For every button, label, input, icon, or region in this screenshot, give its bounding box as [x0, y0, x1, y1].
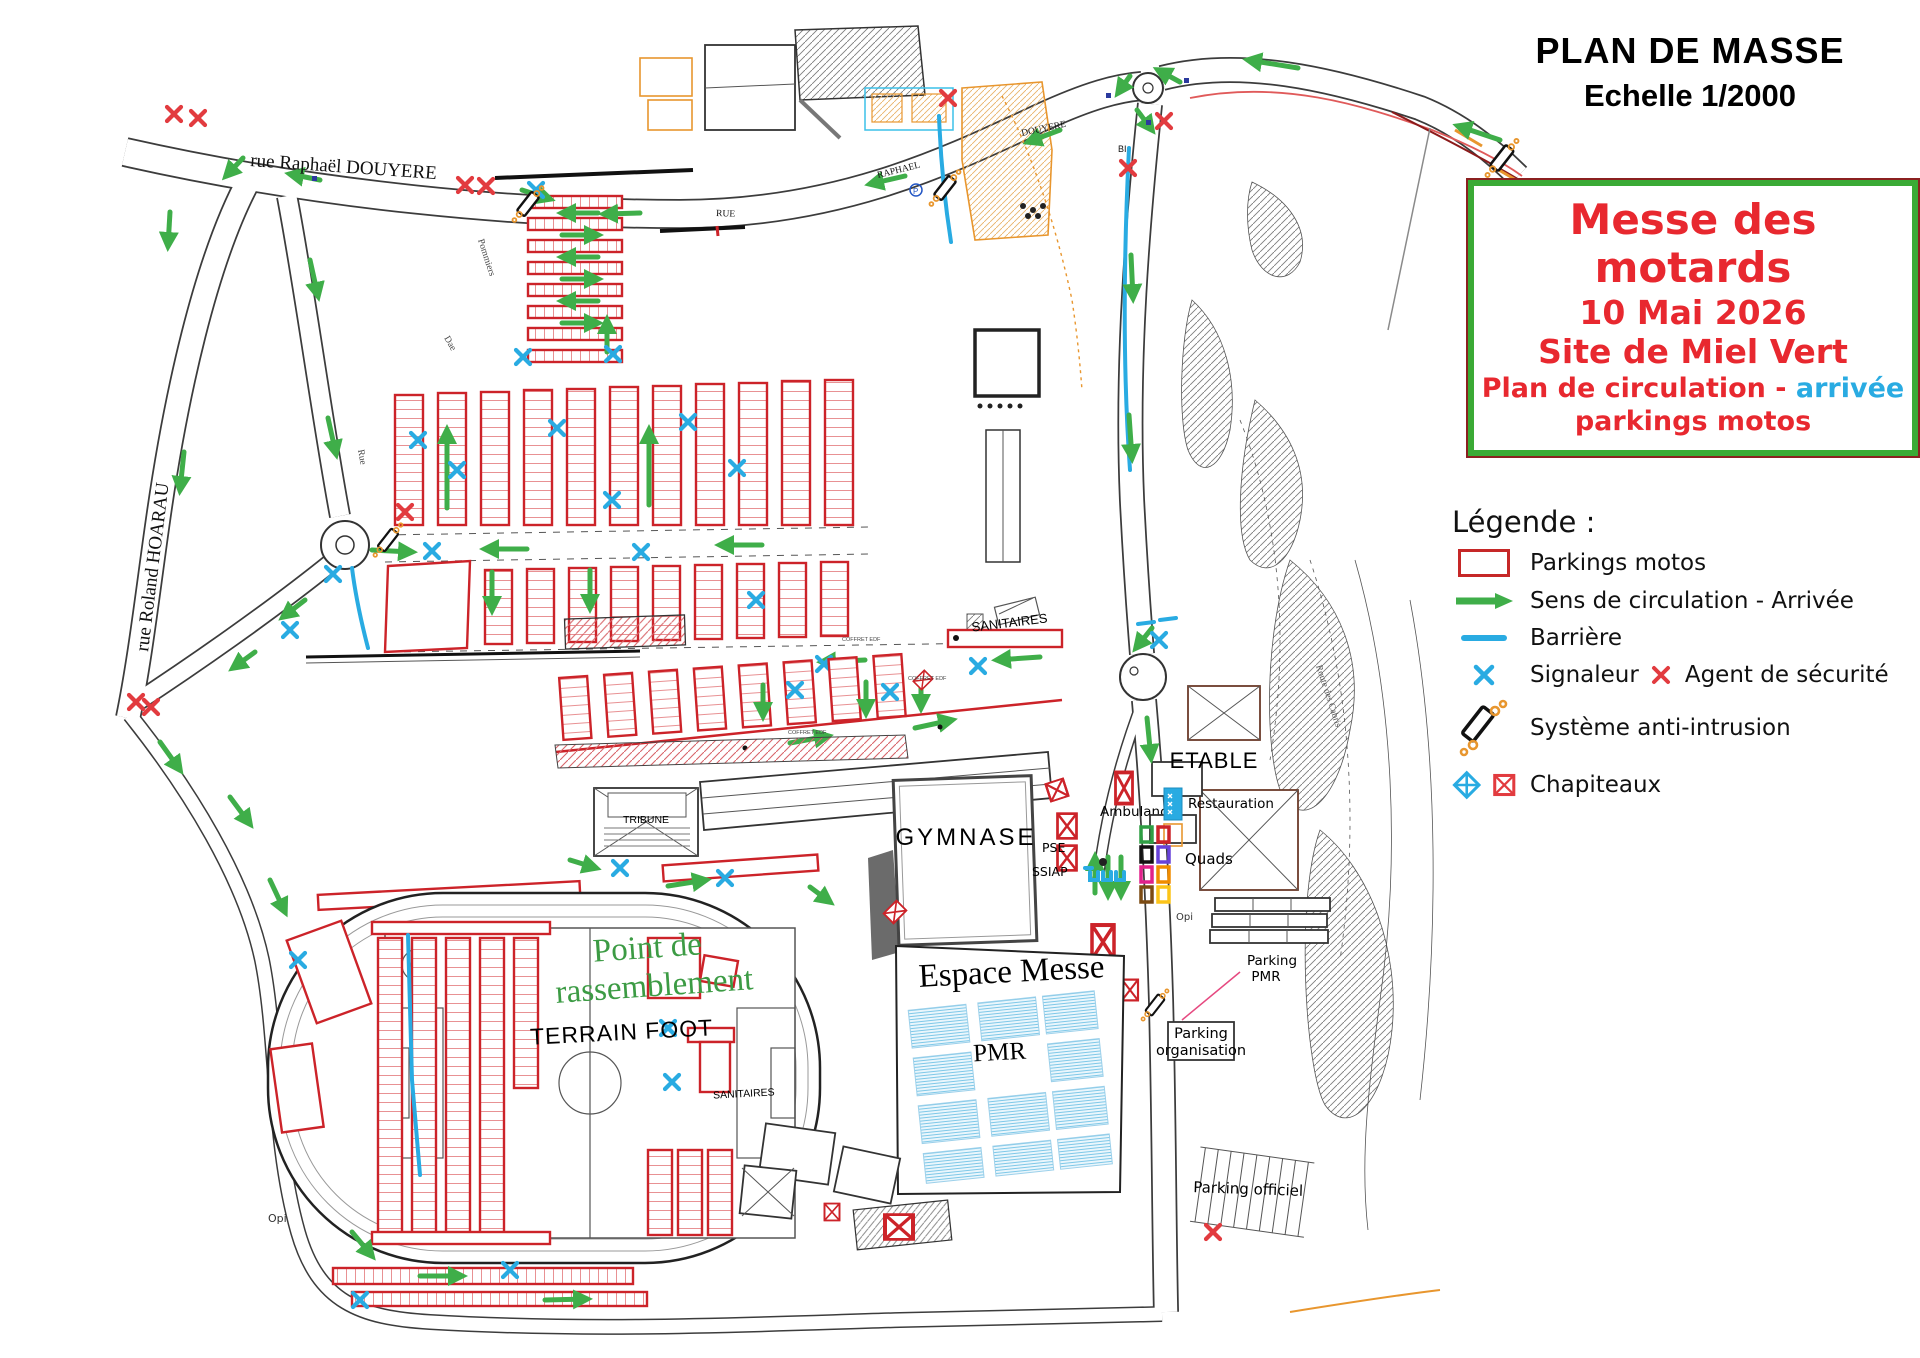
legend-signaleur-label: Signaleur [1530, 662, 1639, 688]
roundabout-west [321, 521, 369, 569]
red-x-icon [1639, 665, 1683, 685]
parking-rect-icon [1458, 549, 1510, 577]
chapiteaux-icons [1452, 768, 1516, 802]
event-plan-line: Plan de circulation - arrivée [1480, 372, 1906, 406]
green-arrow-icon [1452, 592, 1516, 610]
gymnase-label: GYMNASE [895, 824, 1036, 851]
legend-parkings-label: Parkings motos [1530, 550, 1706, 576]
restauration-label: Restauration [1188, 796, 1274, 812]
plan-title: PLAN DE MASSE Echelle 1/2000 [1460, 30, 1920, 114]
parking-org-label-2: organisation [1156, 1043, 1246, 1059]
parking-pmr-label-1: Parking [1247, 953, 1297, 969]
parking-block-north [395, 380, 853, 525]
legend-agent-label: Agent de sécurité [1685, 662, 1889, 688]
event-site: Site de Miel Vert [1480, 332, 1906, 372]
legend-sens-label: Sens de circulation - Arrivée [1530, 588, 1854, 614]
plan-title-line2: Echelle 1/2000 [1460, 78, 1920, 114]
event-info-box: Messe des motards 10 Mai 2026 Site de Mi… [1468, 180, 1918, 456]
legend-row-chapiteaux: Chapiteaux [1452, 768, 1920, 802]
legend-anti-intrusion-label: Système anti-intrusion [1530, 715, 1791, 741]
pmr-label: PMR [973, 1038, 1027, 1068]
legend-row-anti-intrusion: Système anti-intrusion [1452, 699, 1920, 757]
point-rassemblement-1: Point de [592, 926, 703, 970]
event-parkings-line: parkings motos [1480, 406, 1906, 438]
etable-label: ETABLE [1170, 748, 1259, 773]
roundabout-east [1120, 654, 1166, 700]
street-rue-tiny: Rue [355, 449, 368, 466]
coffret-edf-2: COFFRET EDF [788, 730, 827, 736]
sanitaires-north: SANITAIRES [948, 597, 1062, 647]
legend-row-sens: Sens de circulation - Arrivée [1452, 588, 1920, 614]
plan-circulation-text: Plan de circulation - [1482, 373, 1796, 404]
anti-intrusion-icon [1452, 699, 1516, 757]
plan-title-line1: PLAN DE MASSE [1460, 30, 1920, 72]
blue-diamond-icon [1452, 768, 1481, 802]
street-hoarau: rue Roland HOARAU [132, 481, 174, 652]
legend-chapiteaux-label: Chapiteaux [1530, 772, 1661, 798]
event-title: Messe des motards [1480, 196, 1906, 293]
street-rue-small: RUE [716, 209, 736, 220]
quads-label: Quads [1185, 850, 1233, 868]
opi-label-west: Opi [268, 1212, 287, 1225]
parking-pmr-label-2: PMR [1251, 969, 1280, 985]
legend-row-barriere: Barrière [1452, 625, 1920, 651]
parking-officiel-label: Parking officiel [1193, 1178, 1303, 1200]
legend: Légende : Parkings motos Sens de circula… [1452, 505, 1920, 813]
legend-row-signaleur: Signaleur Agent de sécurité [1452, 662, 1920, 688]
p-label: P [913, 187, 918, 196]
street-pommiers: Pommiers [475, 238, 497, 278]
opi-label-east: Opi [1176, 912, 1193, 923]
legend-heading: Légende : [1452, 505, 1920, 539]
tribune-label: TRIBUNE [623, 814, 669, 826]
pse-label: PSE [1042, 840, 1065, 855]
legend-row-parkings: Parkings motos [1452, 549, 1920, 577]
espace-messe: Espace Messe PMR [896, 946, 1124, 1194]
ssiap-label: SSIAP [1032, 864, 1068, 879]
legend-barriere-label: Barrière [1530, 625, 1622, 651]
parking-org-label-1: Parking [1174, 1026, 1228, 1042]
arrivee-text: arrivée [1796, 373, 1904, 404]
roundabout-north [1133, 73, 1163, 103]
barrier-line-icon [1461, 635, 1507, 641]
hatched-strip [555, 735, 908, 768]
coffret-edf-3: COFFRET EDF [908, 676, 947, 682]
event-date: 10 Mai 2026 [1480, 293, 1906, 333]
plan-de-masse-page: SANITAIRES TRIBUNE GYMNASE [0, 0, 1920, 1358]
bi-label: BI [1118, 144, 1127, 154]
coffret-edf-1: COFFRET EDF [842, 637, 881, 643]
red-crossed-square-icon [1493, 772, 1516, 798]
east-parkings: Parking organisation Parking officiel [1141, 972, 1440, 1312]
restauration-icon [1164, 788, 1182, 820]
blue-x-icon [1452, 664, 1516, 686]
street-dae: Dae [441, 335, 457, 353]
parking-block-south [385, 561, 848, 652]
